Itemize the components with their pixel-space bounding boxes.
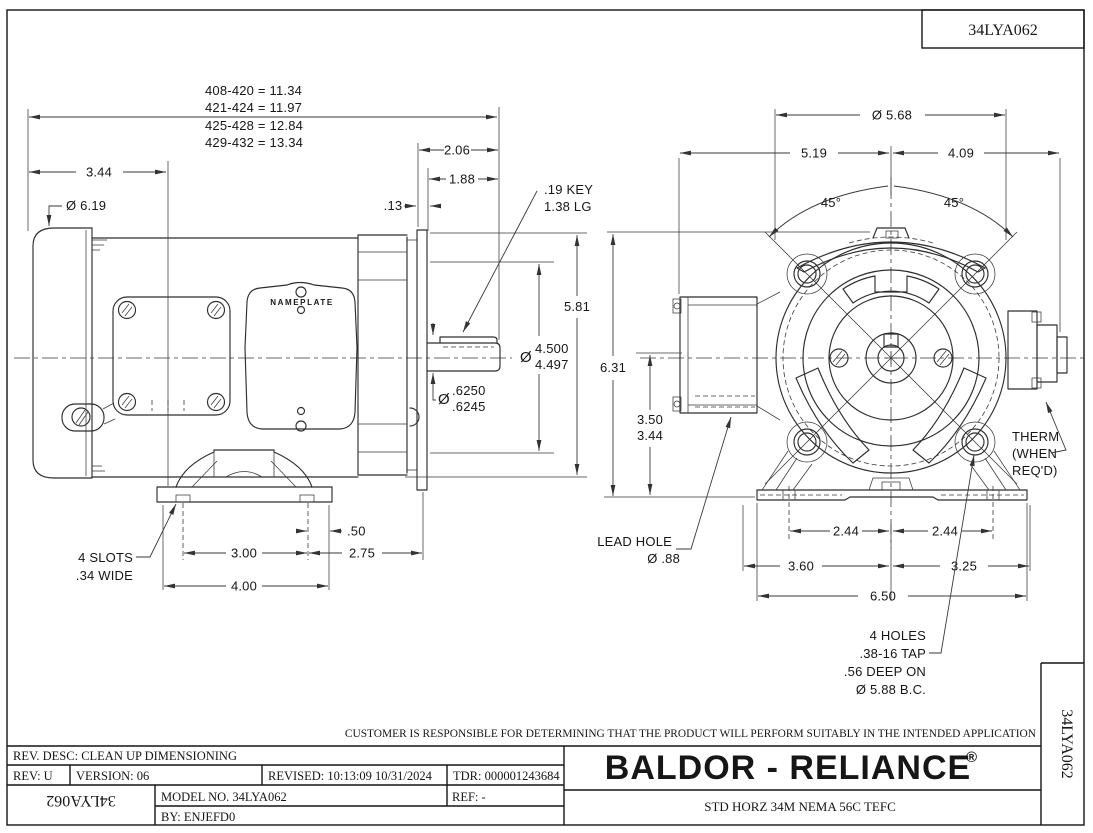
junction-box bbox=[673, 292, 780, 420]
conduit-box-cover bbox=[113, 297, 230, 415]
dim-therm-note-3: REQ'D) bbox=[1012, 463, 1058, 478]
dim-angle-right: 45° bbox=[944, 195, 964, 210]
dim-foot-to-flange: 2.75 bbox=[349, 546, 375, 561]
length-table-row: 421-424 = 11.97 bbox=[205, 100, 302, 115]
brand-logo: BALDOR - RELIANCE bbox=[605, 749, 971, 787]
dim-width-right: 4.09 bbox=[948, 146, 974, 161]
mounting-foot-side bbox=[157, 450, 332, 502]
dim-lead-hole-1: LEAD HOLE bbox=[597, 534, 672, 549]
dim-flange-height: 5.81 bbox=[564, 299, 590, 314]
motor-front-view bbox=[640, 183, 1085, 548]
dim-slot-to-edge: .50 bbox=[347, 524, 366, 539]
dim-base-width: 6.50 bbox=[870, 589, 896, 604]
model-no: MODEL NO. 34LYA062 bbox=[161, 790, 287, 804]
page-frame: 34LYA062 bbox=[7, 10, 1084, 825]
dim-therm-note-1: THERM bbox=[1012, 429, 1059, 444]
nameplate: NAMEPLATE bbox=[245, 283, 357, 432]
doc-number-inverted: 34LYA062 bbox=[46, 792, 116, 809]
dim-slots-note-1: 4 SLOTS bbox=[78, 550, 133, 565]
dim-overall-height: 6.31 bbox=[600, 360, 626, 375]
motor-side-view: NAMEPLATE bbox=[14, 228, 512, 502]
cover-screws bbox=[119, 302, 225, 411]
dim-base-left: 3.60 bbox=[788, 559, 814, 574]
by: BY: ENJEFD0 bbox=[161, 810, 235, 824]
dim-base-length: 4.00 bbox=[231, 579, 257, 594]
rev-desc: REV. DESC: CLEAN UP DIMENSIONING bbox=[13, 749, 237, 763]
dim-pilot-sym: Ø bbox=[520, 349, 532, 366]
dim-therm-note-2: (WHEN bbox=[1012, 446, 1057, 461]
dim-holes-note-4: Ø 5.88 B.C. bbox=[856, 682, 926, 697]
therm-boss bbox=[1008, 311, 1067, 389]
dim-pilot-lower: 4.497 bbox=[535, 357, 569, 372]
dim-shaft-usable: 1.88 bbox=[449, 172, 475, 187]
dim-shaft-height-lower: 3.44 bbox=[637, 428, 663, 443]
dim-lead-hole-2: Ø .88 bbox=[647, 551, 680, 566]
disclaimer-text: CUSTOMER IS RESPONSIBLE FOR DETERMINING … bbox=[345, 728, 1036, 740]
dim-shaft-height-upper: 3.50 bbox=[637, 412, 663, 427]
drawing-sheet: 34LYA062 bbox=[0, 0, 1093, 833]
length-table-row: 429-432 = 13.34 bbox=[205, 135, 303, 150]
ground-screw bbox=[62, 403, 115, 431]
dim-key-note-2: 1.38 LG bbox=[544, 199, 592, 214]
nameplate-label: NAMEPLATE bbox=[270, 298, 334, 307]
dim-rear-to-face: 3.44 bbox=[86, 165, 112, 180]
doc-number-top: 34LYA062 bbox=[968, 22, 1038, 39]
tdr: TDR: 000001243684 bbox=[453, 769, 560, 783]
registered-mark: ® bbox=[966, 749, 977, 766]
technical-drawing: 34LYA062 bbox=[0, 0, 1093, 833]
doc-number-right: 34LYA062 bbox=[1058, 709, 1075, 779]
revised: REVISED: 10:13:09 10/31/2024 bbox=[268, 769, 433, 783]
version: VERSION: 06 bbox=[76, 769, 149, 783]
shaft bbox=[427, 337, 500, 371]
rev: REV: U bbox=[13, 769, 53, 783]
length-table-row: 408-420 = 11.34 bbox=[205, 83, 302, 98]
dim-foot-spacing: 3.00 bbox=[231, 546, 257, 561]
dim-shaft-lower: .6245 bbox=[452, 399, 486, 414]
dim-holes-note-2: .38-16 TAP bbox=[859, 646, 926, 661]
front-view-dimensions: Ø 5.68 5.19 4.09 45° 45° 6.31 3.50 3.44 … bbox=[597, 108, 1066, 698]
dim-key-start: .13 bbox=[384, 198, 403, 213]
dim-holes-note-1: 4 HOLES bbox=[870, 628, 926, 643]
dim-holes-note-3: .56 DEEP ON bbox=[844, 664, 926, 679]
dim-foot-half-left: 2.44 bbox=[833, 524, 859, 539]
dim-pilot-upper: 4.500 bbox=[535, 341, 569, 356]
dim-angle-left: 45° bbox=[821, 195, 841, 210]
dim-shaft-ext: 2.06 bbox=[444, 143, 470, 158]
dim-key-note-1: .19 KEY bbox=[544, 182, 593, 197]
dim-foot-half-right: 2.44 bbox=[932, 524, 958, 539]
ref: REF: - bbox=[452, 790, 486, 804]
dim-outer-dia: Ø 5.68 bbox=[872, 108, 912, 123]
product-description: STD HORZ 34M NEMA 56C TEFC bbox=[704, 799, 896, 814]
dim-fan-dia: Ø 6.19 bbox=[66, 198, 106, 213]
dim-width-left: 5.19 bbox=[801, 146, 827, 161]
length-table-row: 425-428 = 12.84 bbox=[205, 118, 303, 133]
dim-shaft-sym: Ø bbox=[438, 391, 450, 408]
dim-slots-note-2: .34 WIDE bbox=[76, 568, 133, 583]
dim-shaft-upper: .6250 bbox=[452, 383, 486, 398]
